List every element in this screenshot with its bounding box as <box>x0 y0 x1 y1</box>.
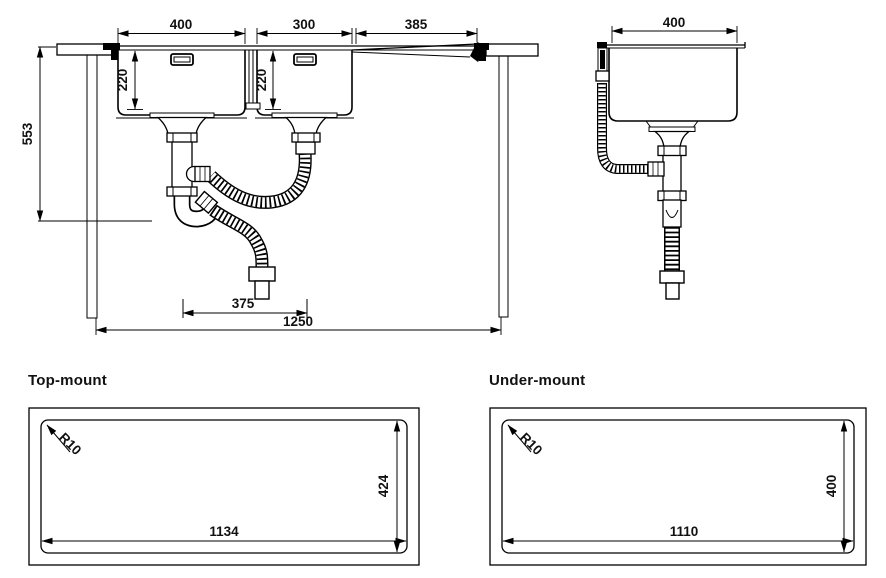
bowl2-drain-flange <box>272 113 337 118</box>
dim-bowl2-width: 300 <box>257 17 352 44</box>
overflow-assembly <box>596 42 650 169</box>
waste-plumbing <box>150 113 337 299</box>
left-cabinet-panel <box>87 55 97 318</box>
bowl2-drain-stub <box>296 142 315 154</box>
dim-label-220-bowl1: 220 <box>115 69 130 92</box>
sink-technical-drawing-svg: 400 300 385 220 220 553 <box>0 0 886 578</box>
dim-label-375: 375 <box>232 296 255 311</box>
bowl1-drain-funnel <box>158 118 206 135</box>
dim-label-1250: 1250 <box>283 314 313 329</box>
side-rim <box>600 42 745 48</box>
dim-label-400-under-mount: 400 <box>824 475 839 498</box>
dim-label-553: 553 <box>20 122 35 145</box>
bowl1-drain-flange <box>150 113 214 118</box>
right-cabinet-panel <box>499 56 508 317</box>
under-mount-title: Under-mount <box>489 372 585 389</box>
dim-label-220-bowl2: 220 <box>254 69 269 92</box>
dim-label-400-side: 400 <box>663 15 686 30</box>
dim-bowl2-depth: 220 <box>254 51 281 110</box>
dim-drainboard-width: 385 <box>356 17 477 44</box>
bowl2-overflow <box>294 54 316 65</box>
dim-label-424: 424 <box>376 474 391 497</box>
bowl1-overflow <box>171 54 193 65</box>
dim-label-385: 385 <box>405 17 428 32</box>
dim-bowl1-width: 400 <box>118 17 245 44</box>
dim-label-1110: 1110 <box>670 524 699 539</box>
waste-outlet-fitting <box>249 267 275 299</box>
dim-overall-height: 553 <box>20 47 152 221</box>
drainboard <box>352 42 487 62</box>
dim-label-300: 300 <box>293 17 316 32</box>
dim-side-bowl-width: 400 <box>612 15 737 43</box>
side-bowl-outline <box>609 48 737 121</box>
overflow-inlet-nut <box>648 162 664 176</box>
bowl1-drain-pipe <box>172 141 192 193</box>
front-view: 400 300 385 220 220 553 <box>20 17 538 335</box>
side-outlet-fitting <box>660 271 684 299</box>
dim-label-400-bowl1: 400 <box>170 17 193 32</box>
top-mount-title: Top-mount <box>28 372 107 389</box>
dim-bowl1-depth: 220 <box>115 51 143 110</box>
right-countertop-section <box>486 44 538 56</box>
dim-overall-width: 1250 <box>96 314 501 335</box>
side-coupling-upper <box>658 146 686 156</box>
side-view: 400 <box>596 15 745 299</box>
dim-label-1134: 1134 <box>209 524 239 539</box>
side-drain-stack <box>648 127 695 299</box>
bowl2-drain-hose <box>211 153 305 202</box>
bowl1-coupling-upper <box>167 133 197 142</box>
under-mount-cutout-drawing: R10 400 1110 <box>490 408 866 565</box>
bowl2-coupling <box>292 133 320 142</box>
tee-fitting <box>187 167 211 182</box>
top-mount-cutout-drawing: R10 424 1134 <box>29 408 419 565</box>
bowl2-drain-funnel <box>286 118 326 135</box>
bowl1-coupling-lower <box>167 187 197 196</box>
side-coupling-lower <box>658 191 686 201</box>
outlet-hose <box>213 210 262 268</box>
sink-installation-drawing-page: 400 300 385 220 220 553 <box>0 0 886 578</box>
